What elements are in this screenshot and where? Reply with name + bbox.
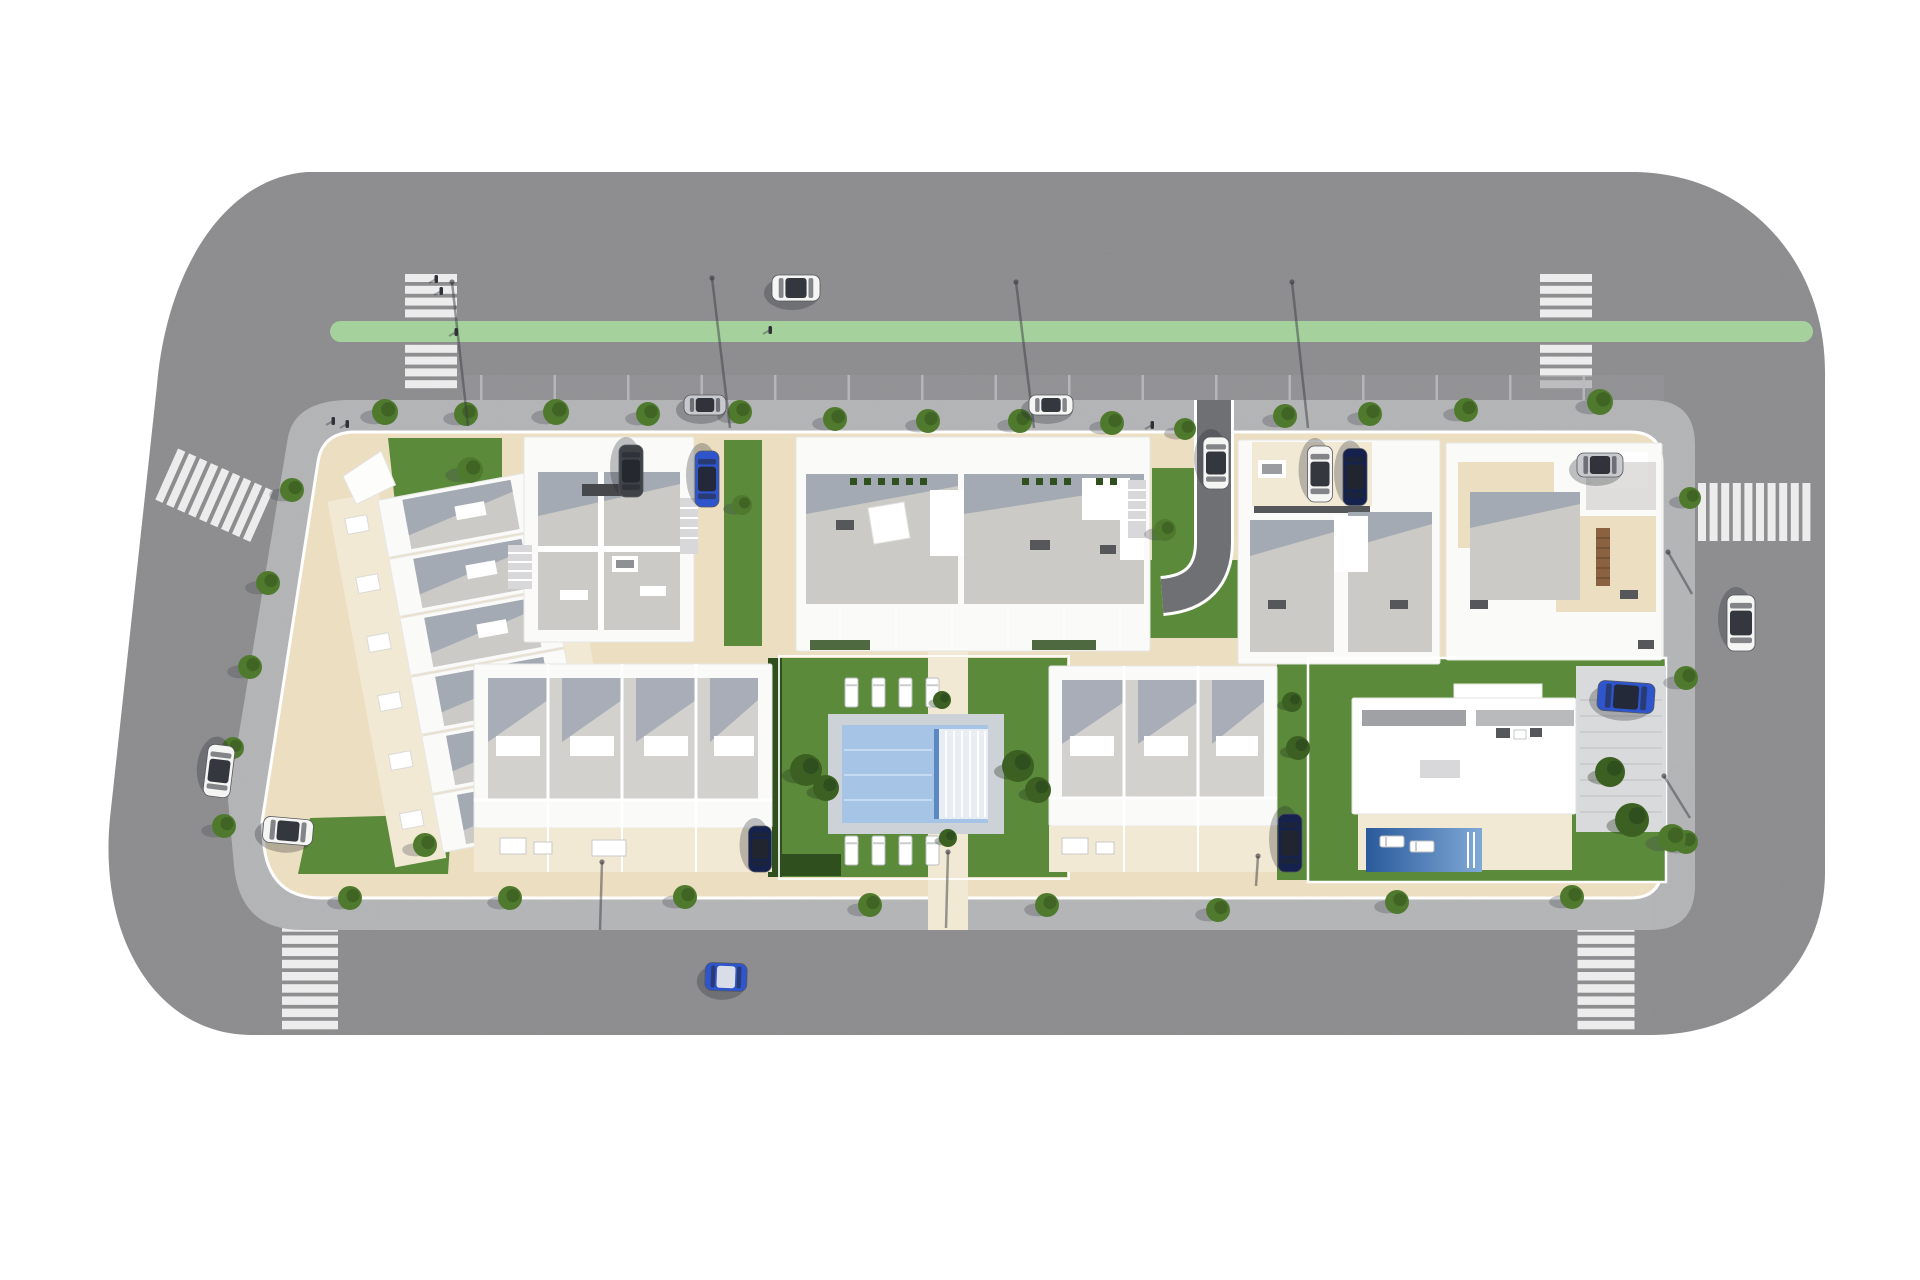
car-navy-south-block-a [740,818,772,872]
sun-lounger [1380,836,1404,847]
sun-lounger [899,836,912,865]
building-apartment-b [796,437,1150,651]
car-blue-block-a [686,443,719,507]
car-white-block-c [1299,438,1333,502]
building-townhouse-south-b [1049,666,1277,872]
car-navy-block-c [1334,441,1367,506]
building-apartment-d [1446,443,1662,660]
car-white-right-road [1718,587,1755,651]
car-sedan-top-road [764,275,820,310]
sun-lounger [899,678,912,707]
car-navy-south-block-b [1269,806,1302,872]
site-plan-render [0,0,1920,1280]
building-townhouse-south-a [474,664,772,872]
car-silver-block-d [1569,453,1623,486]
sun-lounger [845,836,858,865]
stairs-east [680,498,698,554]
green-cycle-lane [330,321,1813,342]
sun-lounger [872,836,885,865]
hedge-pool-corner [781,854,841,876]
lawn-strip-between-blocks [724,440,762,646]
penthouse-box-1 [930,490,964,556]
sun-lounger [1410,841,1434,852]
building-apartment-a [508,437,698,642]
garage-doors [1254,506,1370,513]
car-on-driveway [1194,429,1229,489]
green-lane-stripe [330,321,1813,342]
sun-lounger [872,678,885,707]
penthouse-box-2 [1082,478,1130,520]
penthouse-box [1334,516,1368,572]
site-plan-canvas [0,0,1920,1280]
roof-canopy [868,502,910,544]
sun-lounger [845,678,858,707]
stairs-west [508,545,532,589]
van-dark-block-a [610,437,643,497]
